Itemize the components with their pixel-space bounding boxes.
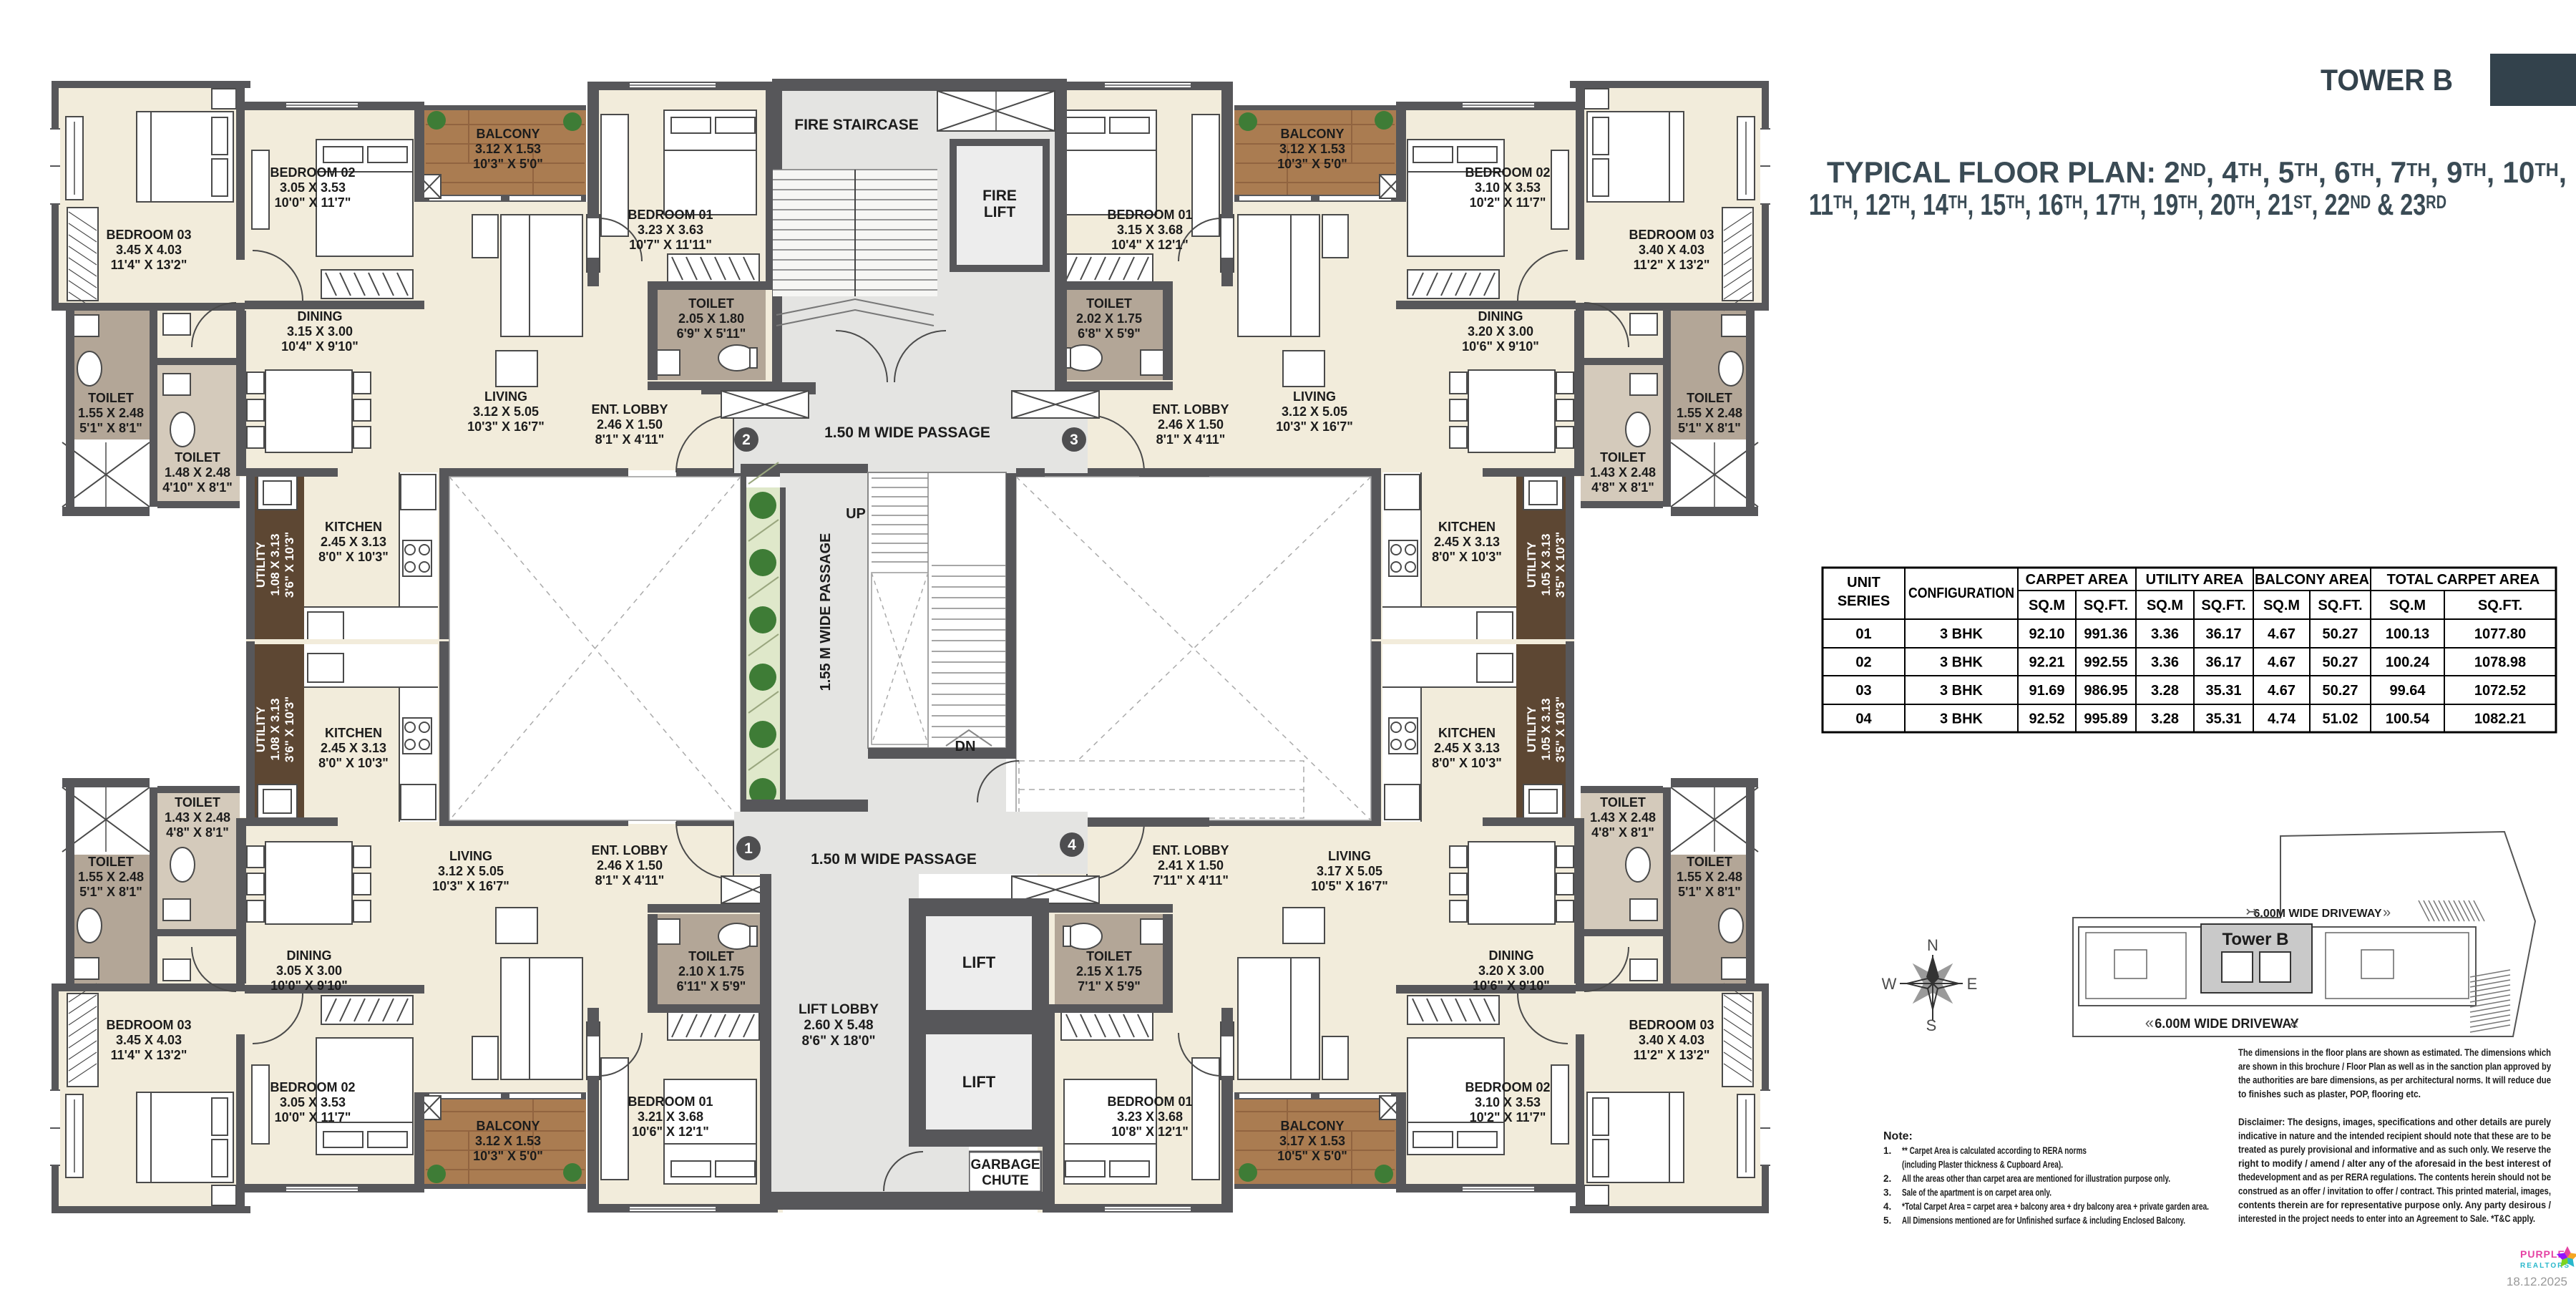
svg-text:11'2" X 13'2": 11'2" X 13'2" (1634, 258, 1710, 272)
svg-text:35.31: 35.31 (2205, 683, 2241, 699)
svg-text:4'8" X 8'1": 4'8" X 8'1" (1591, 825, 1654, 840)
svg-text:4: 4 (1068, 837, 1076, 853)
svg-text:10'5" X 5'0": 10'5" X 5'0" (1277, 1149, 1347, 1163)
svg-text:10'7" X 11'11": 10'7" X 11'11" (629, 238, 712, 252)
svg-text:1072.52: 1072.52 (2474, 683, 2526, 699)
svg-text:3 BHK: 3 BHK (1940, 683, 1984, 699)
svg-text:right to modify / amend / alte: right to modify / amend / alter any of t… (2238, 1157, 2551, 1169)
svg-text:50.27: 50.27 (2322, 626, 2358, 642)
svg-text:SQ.FT.: SQ.FT. (2478, 598, 2522, 613)
svg-text:36.17: 36.17 (2205, 626, 2241, 642)
svg-text:4'8" X 8'1": 4'8" X 8'1" (166, 825, 229, 840)
svg-text:10'0" X 11'7": 10'0" X 11'7" (275, 195, 351, 210)
svg-text:1.08 X 3.13: 1.08 X 3.13 (268, 699, 282, 761)
svg-text:1: 1 (744, 840, 753, 857)
svg-text:UNIT: UNIT (1847, 575, 1880, 591)
svg-text:1.43 X 2.48: 1.43 X 2.48 (165, 810, 230, 825)
svg-text:3.12 X 1.53: 3.12 X 1.53 (475, 142, 541, 156)
svg-text:1.55 X 2.48: 1.55 X 2.48 (1677, 406, 1742, 420)
svg-text:SERIES: SERIES (1838, 593, 1890, 609)
svg-text:6'11" X 5'9": 6'11" X 5'9" (677, 979, 746, 994)
svg-text:50.27: 50.27 (2322, 655, 2358, 671)
svg-text:E: E (1967, 975, 1978, 993)
svg-text:3 BHK: 3 BHK (1940, 655, 1984, 671)
svg-text:4.67: 4.67 (2268, 683, 2296, 699)
svg-text:All Dimensions mentioned are f: All Dimensions mentioned are for Unfinis… (1902, 1215, 2185, 1226)
svg-text:991.36: 991.36 (2084, 626, 2127, 642)
svg-text:LIVING: LIVING (484, 389, 527, 404)
svg-text:DINING: DINING (1489, 948, 1534, 963)
svg-text:1077.80: 1077.80 (2474, 626, 2526, 642)
svg-text:5.: 5. (1883, 1215, 1891, 1226)
svg-text:CONFIGURATION: CONFIGURATION (1908, 586, 2014, 601)
svg-text:3.05 X 3.53: 3.05 X 3.53 (280, 1095, 346, 1109)
svg-text:TOILET: TOILET (175, 795, 220, 810)
svg-text:treated as purely provisional: treated as purely provisional and inform… (2238, 1144, 2551, 1155)
svg-text:BEDROOM 03: BEDROOM 03 (1629, 1018, 1714, 1032)
svg-text:8'1" X 4'11": 8'1" X 4'11" (595, 432, 665, 447)
svg-text:FIRE STAIRCASE: FIRE STAIRCASE (794, 117, 918, 133)
svg-text:3.40 X 4.03: 3.40 X 4.03 (1639, 1033, 1704, 1047)
svg-text:2.46 X 1.50: 2.46 X 1.50 (597, 417, 663, 432)
svg-text:8'1" X 4'11": 8'1" X 4'11" (1156, 432, 1226, 447)
svg-text:3'5" X 10'3": 3'5" X 10'3" (1553, 532, 1567, 598)
svg-text:10'3" X 5'0": 10'3" X 5'0" (473, 157, 543, 171)
svg-text:GARBAGE: GARBAGE (970, 1157, 1040, 1172)
svg-text:2: 2 (742, 432, 751, 448)
svg-text:2.05 X 1.80: 2.05 X 1.80 (678, 311, 744, 326)
svg-text:SQ.FT.: SQ.FT. (2201, 598, 2245, 613)
svg-text:BEDROOM 01: BEDROOM 01 (1107, 1094, 1192, 1109)
svg-text:3.: 3. (1883, 1187, 1891, 1198)
svg-text:4.67: 4.67 (2268, 626, 2296, 642)
svg-text:DINING: DINING (1478, 309, 1523, 324)
svg-text:8'1" X 4'11": 8'1" X 4'11" (595, 873, 665, 888)
svg-text:SQ.FT.: SQ.FT. (2318, 598, 2362, 613)
svg-text:100.54: 100.54 (2386, 711, 2430, 727)
svg-text:interested in the project need: interested in the project needs to enter… (2238, 1213, 2535, 1224)
svg-text:DINING: DINING (287, 948, 332, 963)
svg-text:LIFT: LIFT (984, 204, 1015, 220)
svg-text:SQ.M: SQ.M (2263, 598, 2300, 613)
svg-text:BEDROOM 03: BEDROOM 03 (106, 1018, 191, 1032)
svg-text:100.24: 100.24 (2386, 655, 2430, 671)
svg-text:3.12 X 5.05: 3.12 X 5.05 (473, 404, 539, 419)
svg-text:3.40 X 4.03: 3.40 X 4.03 (1639, 243, 1704, 257)
svg-text:TOILET: TOILET (1086, 296, 1132, 311)
svg-text:7'1" X 5'9": 7'1" X 5'9" (1078, 979, 1141, 994)
svg-text:TOILET: TOILET (88, 855, 134, 869)
svg-text:TOILET: TOILET (1086, 949, 1132, 963)
svg-text:10'0" X 9'10": 10'0" X 9'10" (270, 978, 348, 993)
svg-text:5'1" X 8'1": 5'1" X 8'1" (1678, 421, 1741, 435)
svg-text:4.67: 4.67 (2268, 655, 2296, 671)
svg-text:1.05 X 3.13: 1.05 X 3.13 (1539, 699, 1553, 761)
svg-text:8'0" X 10'3": 8'0" X 10'3" (318, 550, 389, 564)
svg-text:3.28: 3.28 (2151, 683, 2179, 699)
svg-text:LIVING: LIVING (1328, 849, 1371, 863)
svg-text:10'0" X 11'7": 10'0" X 11'7" (275, 1110, 351, 1125)
svg-text:TOILET: TOILET (1600, 450, 1646, 465)
svg-text:4'8" X 8'1": 4'8" X 8'1" (1591, 480, 1654, 495)
svg-text:1.55 X 2.48: 1.55 X 2.48 (78, 406, 144, 420)
svg-text:All the areas other than carpe: All the areas other than carpet area are… (1902, 1173, 2170, 1184)
svg-text:91.69: 91.69 (2029, 683, 2064, 699)
svg-text:2.45 X 3.13: 2.45 X 3.13 (321, 741, 386, 755)
svg-text:5'1" X 8'1": 5'1" X 8'1" (79, 421, 142, 435)
svg-text:SQ.M: SQ.M (2389, 598, 2426, 613)
svg-text:N: N (1927, 936, 1938, 954)
svg-text:2.10 X 1.75: 2.10 X 1.75 (678, 964, 744, 978)
svg-text:3.12 X 1.53: 3.12 X 1.53 (1279, 142, 1345, 156)
svg-text:992.55: 992.55 (2084, 655, 2127, 671)
svg-text:6'8" X 5'9": 6'8" X 5'9" (1078, 326, 1141, 341)
svg-text:BEDROOM 03: BEDROOM 03 (106, 228, 191, 242)
svg-text:3.12 X 5.05: 3.12 X 5.05 (438, 864, 504, 878)
svg-text:(including Plaster thickness &: (including Plaster thickness & Cupboard … (1902, 1160, 2063, 1170)
svg-text:92.21: 92.21 (2029, 655, 2064, 671)
svg-text:2.60 X 5.48: 2.60 X 5.48 (804, 1018, 873, 1033)
svg-text:01: 01 (1855, 626, 1871, 642)
svg-text:The dimensions in the floor pl: The dimensions in the floor plans are sh… (2238, 1046, 2551, 1058)
svg-text:ENT. LOBBY: ENT. LOBBY (1152, 843, 1229, 858)
svg-text:thedevelopment and as per RERA: thedevelopment and as per RERA regulatio… (2238, 1171, 2551, 1182)
svg-text:DN: DN (955, 739, 976, 754)
svg-text:KITCHEN: KITCHEN (1438, 520, 1496, 534)
svg-text:2.: 2. (1883, 1173, 1891, 1184)
svg-text:10'8" X 12'1": 10'8" X 12'1" (1111, 1125, 1189, 1139)
svg-text:TOTAL CARPET AREA: TOTAL CARPET AREA (2387, 572, 2540, 588)
svg-text:↣: ↣ (2245, 904, 2258, 920)
svg-text:TOILET: TOILET (1687, 855, 1732, 869)
svg-text:8'0" X 10'3": 8'0" X 10'3" (1432, 550, 1502, 564)
svg-text:11'2" X 13'2": 11'2" X 13'2" (1634, 1048, 1710, 1062)
svg-text:CHUTE: CHUTE (982, 1173, 1028, 1188)
svg-text:TOILET: TOILET (1600, 795, 1646, 810)
svg-text:2.45 X 3.13: 2.45 X 3.13 (1434, 535, 1500, 549)
svg-text:10'6" X 12'1": 10'6" X 12'1" (632, 1125, 709, 1139)
svg-text:LIVING: LIVING (449, 849, 492, 863)
svg-text:3.15 X 3.00: 3.15 X 3.00 (287, 324, 353, 339)
svg-text:10'6" X 9'10": 10'6" X 9'10" (1462, 339, 1539, 354)
svg-text:100.13: 100.13 (2386, 626, 2429, 642)
svg-text:ENT. LOBBY: ENT. LOBBY (1152, 402, 1229, 417)
svg-text:UTILITY: UTILITY (254, 706, 268, 752)
svg-text:*Total Carpet Area = carpet ar: *Total Carpet Area = carpet area + balco… (1902, 1201, 2209, 1212)
svg-text:3.20 X 3.00: 3.20 X 3.00 (1478, 963, 1544, 978)
svg-text:2.45 X 3.13: 2.45 X 3.13 (321, 535, 386, 549)
svg-text:BEDROOM 01: BEDROOM 01 (1107, 208, 1192, 222)
svg-text:3.23 X 3.68: 3.23 X 3.68 (1117, 1109, 1183, 1124)
svg-text:3'6" X 10'3": 3'6" X 10'3" (283, 532, 296, 598)
svg-text:BEDROOM 02: BEDROOM 02 (1465, 165, 1550, 180)
svg-text:92.52: 92.52 (2029, 711, 2064, 727)
svg-text:Note:: Note: (1883, 1130, 1913, 1142)
svg-text:construed as an offer / invita: construed as an offer / invitation to of… (2238, 1185, 2551, 1197)
svg-text:10'3" X 16'7": 10'3" X 16'7" (1276, 419, 1353, 434)
svg-text:2.41 X 1.50: 2.41 X 1.50 (1158, 858, 1224, 873)
svg-text:3'6" X 10'3": 3'6" X 10'3" (283, 696, 296, 762)
svg-text:11'4" X 13'2": 11'4" X 13'2" (111, 1048, 187, 1062)
svg-text:8'0" X 10'3": 8'0" X 10'3" (318, 756, 389, 770)
svg-text:3.23 X 3.63: 3.23 X 3.63 (638, 223, 703, 237)
svg-text:995.89: 995.89 (2084, 711, 2127, 727)
svg-text:04: 04 (1855, 711, 1872, 727)
svg-text:4.74: 4.74 (2268, 711, 2296, 727)
svg-text:BEDROOM 01: BEDROOM 01 (628, 208, 713, 222)
svg-text:TOILET: TOILET (688, 949, 734, 963)
svg-text:SQ.M: SQ.M (2147, 598, 2183, 613)
svg-text:ENT. LOBBY: ENT. LOBBY (591, 402, 668, 417)
svg-text:6'9" X 5'11": 6'9" X 5'11" (677, 326, 746, 341)
svg-text:LIFT LOBBY: LIFT LOBBY (799, 1002, 879, 1017)
svg-text:11'4" X 13'2": 11'4" X 13'2" (111, 258, 187, 272)
svg-text:1.05 X 3.13: 1.05 X 3.13 (1539, 534, 1553, 596)
svg-text:SQ.FT.: SQ.FT. (2084, 598, 2128, 613)
svg-text:KITCHEN: KITCHEN (325, 726, 382, 740)
svg-text:35.31: 35.31 (2205, 711, 2241, 727)
svg-text:2.02 X 1.75: 2.02 X 1.75 (1076, 311, 1142, 326)
svg-text:6.00M WIDE DRIVEWAY: 6.00M WIDE DRIVEWAY (2253, 908, 2381, 920)
svg-text:TOILET: TOILET (175, 450, 220, 465)
svg-text:3.36: 3.36 (2151, 655, 2179, 671)
svg-text:indicative in nature and the i: indicative in nature and the intended re… (2238, 1130, 2551, 1141)
svg-text:03: 03 (1855, 683, 1871, 699)
svg-text:3.12 X 5.05: 3.12 X 5.05 (1282, 404, 1347, 419)
svg-text:10'3" X 5'0": 10'3" X 5'0" (473, 1149, 543, 1163)
svg-text:3.36: 3.36 (2151, 626, 2179, 642)
svg-text:BALCONY: BALCONY (1281, 127, 1345, 141)
svg-text:«: « (2145, 1014, 2154, 1031)
svg-text:3.10 X 3.53: 3.10 X 3.53 (1475, 1095, 1541, 1109)
svg-text:«: « (2290, 1014, 2298, 1032)
svg-text:3.20 X 3.00: 3.20 X 3.00 (1468, 324, 1533, 339)
svg-text:TOWER B: TOWER B (2321, 63, 2453, 97)
svg-text:51.02: 51.02 (2322, 711, 2358, 727)
svg-text:the authorities are bare dimen: the authorities are bare dimensions, as … (2238, 1074, 2551, 1086)
svg-text:18.12.2025: 18.12.2025 (2507, 1275, 2567, 1288)
svg-text:3'5" X 10'3": 3'5" X 10'3" (1553, 696, 1567, 762)
svg-text:BALCONY: BALCONY (477, 127, 540, 141)
svg-text:Tower B: Tower B (2223, 930, 2289, 949)
svg-text:2.46 X 1.50: 2.46 X 1.50 (597, 858, 663, 873)
svg-text:1.50 M WIDE PASSAGE: 1.50 M WIDE PASSAGE (824, 424, 990, 441)
svg-text:KITCHEN: KITCHEN (1438, 726, 1496, 740)
svg-text:SQ.M: SQ.M (2029, 598, 2065, 613)
svg-text:3.17 X 5.05: 3.17 X 5.05 (1317, 864, 1382, 878)
svg-text:contents therein are for repre: contents therein are for representative … (2238, 1199, 2551, 1210)
svg-text:10'4" X 12'1": 10'4" X 12'1" (1111, 238, 1189, 252)
svg-text:10'3" X 16'7": 10'3" X 16'7" (467, 419, 545, 434)
svg-text:LIFT: LIFT (962, 1073, 996, 1091)
svg-text:W: W (1882, 975, 1897, 993)
svg-text:to finishes such as plaster, P: to finishes such as plaster, POP, floori… (2238, 1088, 2421, 1099)
svg-text:FIRE: FIRE (982, 188, 1017, 204)
svg-text:1.08 X 3.13: 1.08 X 3.13 (268, 534, 282, 596)
svg-text:1082.21: 1082.21 (2474, 711, 2526, 727)
svg-text:2.45 X 3.13: 2.45 X 3.13 (1434, 741, 1500, 755)
svg-text:3 BHK: 3 BHK (1940, 711, 1984, 727)
svg-text:BEDROOM 02: BEDROOM 02 (270, 1080, 355, 1094)
svg-text:Disclaimer: The designs, image: Disclaimer: The designs, images, specifi… (2238, 1116, 2551, 1127)
svg-text:99.64: 99.64 (2389, 683, 2426, 699)
svg-text:3.45 X 4.03: 3.45 X 4.03 (116, 1033, 182, 1047)
svg-text:10'3" X 5'0": 10'3" X 5'0" (1277, 157, 1347, 171)
svg-text:LIVING: LIVING (1293, 389, 1336, 404)
svg-text:4'10" X 8'1": 4'10" X 8'1" (162, 480, 233, 495)
svg-text:DINING: DINING (298, 309, 343, 324)
svg-text:3.10 X 3.53: 3.10 X 3.53 (1475, 180, 1541, 195)
svg-text:BEDROOM 01: BEDROOM 01 (628, 1094, 713, 1109)
svg-text:50.27: 50.27 (2322, 683, 2358, 699)
svg-text:CARPET AREA: CARPET AREA (2026, 572, 2129, 588)
svg-text:3.21 X 3.68: 3.21 X 3.68 (638, 1109, 703, 1124)
svg-text:TOILET: TOILET (688, 296, 734, 311)
svg-text:TOILET: TOILET (1687, 391, 1732, 405)
svg-text:3.45 X 4.03: 3.45 X 4.03 (116, 243, 182, 257)
svg-text:BALCONY: BALCONY (1281, 1119, 1345, 1133)
svg-text:1.55 M WIDE PASSAGE: 1.55 M WIDE PASSAGE (818, 533, 834, 691)
svg-text:3 BHK: 3 BHK (1940, 626, 1984, 642)
svg-text:TOILET: TOILET (88, 391, 134, 405)
svg-text:1078.98: 1078.98 (2474, 655, 2526, 671)
svg-text:1.55 X 2.48: 1.55 X 2.48 (1677, 870, 1742, 884)
svg-text:UTILITY: UTILITY (1525, 706, 1538, 752)
svg-text:3.12 X 1.53: 3.12 X 1.53 (475, 1134, 541, 1148)
svg-text:1.: 1. (1883, 1145, 1891, 1156)
svg-text:10'4" X 9'10": 10'4" X 9'10" (281, 339, 358, 354)
svg-text:UTILITY AREA: UTILITY AREA (2146, 572, 2244, 588)
svg-text:LIFT: LIFT (962, 953, 996, 971)
svg-text:02: 02 (1855, 655, 1871, 671)
svg-text:»: » (2383, 905, 2391, 921)
svg-text:10'2" X 11'7": 10'2" X 11'7" (1470, 195, 1546, 210)
svg-text:3.05 X 3.00: 3.05 X 3.00 (276, 963, 342, 978)
svg-text:5'1" X 8'1": 5'1" X 8'1" (1678, 885, 1741, 899)
svg-text:3: 3 (1070, 432, 1078, 448)
svg-text:S: S (1926, 1016, 1937, 1034)
svg-text:8'6" X 18'0": 8'6" X 18'0" (801, 1034, 875, 1049)
svg-text:10'3" X 16'7": 10'3" X 16'7" (432, 879, 509, 893)
svg-text:3.28: 3.28 (2151, 711, 2179, 727)
svg-text:3.17 X 1.53: 3.17 X 1.53 (1279, 1134, 1345, 1148)
svg-text:** Carpet Area is calculated a: ** Carpet Area is calculated according t… (1902, 1145, 2087, 1156)
svg-text:1.43 X 2.48: 1.43 X 2.48 (1590, 465, 1656, 480)
svg-text:7'11" X 4'11": 7'11" X 4'11" (1153, 873, 1229, 888)
svg-text:1.43 X 2.48: 1.43 X 2.48 (1590, 810, 1656, 825)
svg-text:10'6" X 9'10": 10'6" X 9'10" (1473, 978, 1550, 993)
svg-text:3.15 X 3.68: 3.15 X 3.68 (1117, 223, 1183, 237)
svg-text:92.10: 92.10 (2029, 626, 2064, 642)
svg-text:4.: 4. (1883, 1201, 1891, 1212)
svg-text:BEDROOM 02: BEDROOM 02 (1465, 1080, 1550, 1094)
svg-text:BALCONY AREA: BALCONY AREA (2255, 572, 2369, 588)
svg-text:are shown in this brochure / F: are shown in this brochure / Floor Plan … (2238, 1060, 2551, 1072)
svg-text:8'0" X 10'3": 8'0" X 10'3" (1432, 756, 1502, 770)
svg-text:10'5" X 16'7": 10'5" X 16'7" (1311, 879, 1388, 893)
svg-text:KITCHEN: KITCHEN (325, 520, 382, 534)
svg-text:ENT. LOBBY: ENT. LOBBY (591, 843, 668, 858)
svg-text:Sale of the apartment is on ca: Sale of the apartment is on carpet area … (1902, 1187, 2051, 1198)
svg-text:986.95: 986.95 (2084, 683, 2127, 699)
svg-text:36.17: 36.17 (2205, 655, 2241, 671)
svg-text:1.55 X 2.48: 1.55 X 2.48 (78, 870, 144, 884)
svg-text:BEDROOM 02: BEDROOM 02 (270, 165, 355, 180)
svg-text:BALCONY: BALCONY (477, 1119, 540, 1133)
svg-text:UP: UP (846, 506, 866, 522)
svg-text:5'1" X 8'1": 5'1" X 8'1" (79, 885, 142, 899)
svg-text:6.00M WIDE DRIVEWAY: 6.00M WIDE DRIVEWAY (2155, 1016, 2298, 1031)
svg-text:2.15 X 1.75: 2.15 X 1.75 (1076, 964, 1142, 978)
svg-text:2.46 X 1.50: 2.46 X 1.50 (1158, 417, 1224, 432)
svg-text:3.05 X 3.53: 3.05 X 3.53 (280, 180, 346, 195)
svg-text:1.48 X 2.48: 1.48 X 2.48 (165, 465, 230, 480)
svg-text:10'2" X 11'7": 10'2" X 11'7" (1470, 1110, 1546, 1125)
svg-text:1.50 M WIDE PASSAGE: 1.50 M WIDE PASSAGE (811, 851, 977, 868)
svg-text:UTILITY: UTILITY (254, 541, 268, 588)
svg-text:BEDROOM 03: BEDROOM 03 (1629, 228, 1714, 242)
svg-text:UTILITY: UTILITY (1525, 541, 1538, 588)
